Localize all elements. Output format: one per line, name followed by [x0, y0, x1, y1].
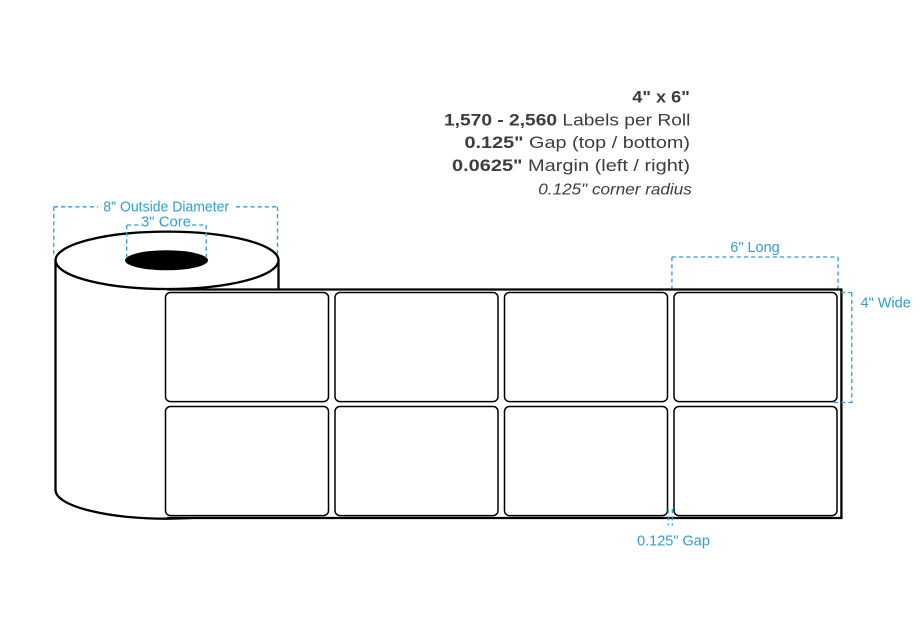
svg-text:8" Outside Diameter: 8" Outside Diameter [103, 200, 229, 216]
svg-text:4" x 6": 4" x 6" [632, 88, 690, 107]
svg-text:4" Wide: 4" Wide [861, 296, 911, 312]
svg-text:6" Long: 6" Long [730, 240, 780, 256]
svg-text:0.125" Gap (top / bottom): 0.125" Gap (top / bottom) [465, 133, 691, 152]
svg-text:3" Core: 3" Core [141, 215, 191, 231]
svg-text:0.125" Gap: 0.125" Gap [637, 533, 710, 549]
svg-text:0.125" corner radius: 0.125" corner radius [538, 182, 692, 199]
svg-text:0.0625" Margin (left / right): 0.0625" Margin (left / right) [452, 156, 690, 175]
svg-text:1,570 - 2,560 Labels per Roll: 1,570 - 2,560 Labels per Roll [444, 110, 690, 129]
